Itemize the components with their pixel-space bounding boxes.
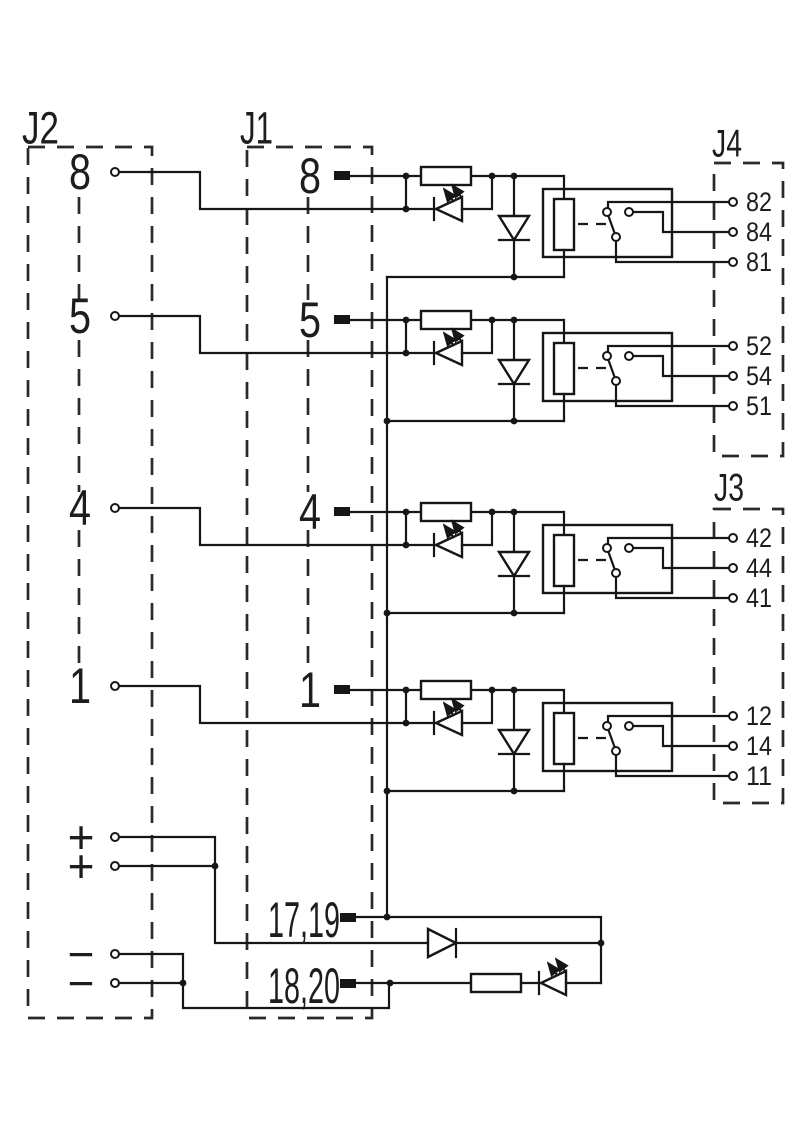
junction-dot (598, 940, 605, 947)
supply-diode (428, 929, 456, 957)
j1-connector-label: J1 (240, 103, 273, 154)
j3-pin-label: 11 (746, 761, 772, 791)
j3-pin-label: 14 (746, 731, 772, 761)
j2-plus-label: + (68, 840, 95, 892)
junction-dot (212, 863, 219, 870)
j2-pin-label: 4 (69, 480, 91, 536)
relay-channel-1 (111, 167, 737, 280)
j2-plus-terminal (111, 862, 119, 870)
schematic-page: J2 J1 J4 J3 8 8 82 84 81 5 5 52 54 (0, 0, 800, 1132)
j4-connector-label: J4 (712, 123, 742, 166)
j1-connector-box (247, 147, 372, 1018)
j4-pin-label: 52 (746, 331, 772, 361)
j2-minus-terminal (111, 979, 119, 987)
j3-pin-label: 44 (746, 553, 772, 583)
j2-minus-label: − (68, 957, 95, 1009)
j1-pin-label: 8 (299, 148, 321, 204)
junction-dot (384, 914, 391, 921)
relay-module-schematic: J2 J1 J4 J3 8 8 82 84 81 5 5 52 54 (0, 0, 800, 1132)
power-led-triangle (541, 971, 566, 995)
j2-pin-label: 1 (69, 658, 91, 714)
j3-pin-label: 12 (746, 701, 772, 731)
relay-channel-2 (111, 311, 737, 424)
led-light-arrow (556, 959, 566, 972)
relay-channel-4 (111, 681, 737, 794)
j2-minus-terminal (111, 950, 119, 958)
indicator-resistor (471, 974, 521, 992)
led-light-arrow (548, 963, 558, 976)
j1-pin-18-20-label: 18,20 (268, 958, 340, 1014)
j1-pin-17-19-label: 17,19 (268, 892, 340, 948)
j4-pin-label: 81 (746, 247, 772, 277)
j1-pin-label: 1 (299, 662, 321, 718)
j2-pin-label: 5 (69, 288, 91, 344)
j1-pin-17-19-contact (340, 913, 356, 922)
j4-pin-label: 54 (746, 361, 772, 391)
j2-plus-terminal (111, 833, 119, 841)
j4-pin-label: 51 (746, 391, 772, 421)
j3-connector-label: J3 (714, 467, 744, 510)
j4-pin-label: 82 (746, 187, 772, 217)
relay-channel-3 (111, 503, 737, 616)
j4-pin-label: 84 (746, 217, 772, 247)
j2-connector-label: J2 (22, 103, 59, 154)
j1-pin-18-20-contact (340, 979, 356, 988)
j3-pin-label: 42 (746, 523, 772, 553)
j3-pin-label: 41 (746, 583, 772, 613)
j2-pin-label: 8 (69, 144, 91, 200)
j1-pin-label: 5 (299, 292, 321, 348)
j1-pin-label: 4 (299, 484, 321, 540)
